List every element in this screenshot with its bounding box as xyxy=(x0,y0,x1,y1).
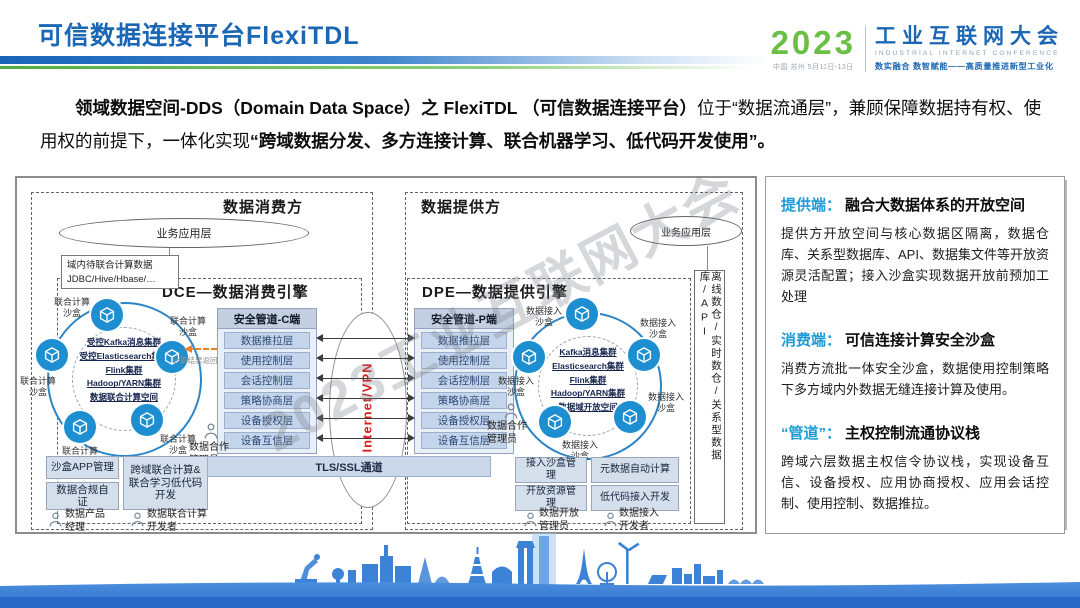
pipe-layer: 设备互信层 xyxy=(224,432,310,449)
role-open-admin: 数据开放管理员 xyxy=(539,508,587,533)
pipe-layer: 会话控制层 xyxy=(224,372,310,389)
slide: 可信数据连接平台FlexiTDL 2023 中国·苏州 5月11日-13日 工业… xyxy=(0,0,1080,608)
consumer-zone-label: 数据消费方 xyxy=(223,196,303,217)
sandbox-label: 数据接入沙盒 xyxy=(523,306,565,328)
flow-arrow xyxy=(319,378,412,379)
arrow-note: 计算结果返回 xyxy=(160,355,230,366)
sandbox-label: 联合计算沙盒 xyxy=(167,316,209,338)
tls-channel: TLS/SSL通道 xyxy=(207,456,491,477)
logo-name-cn: 工业互联网大会 xyxy=(875,26,1064,48)
section-body: 提供方开放空间与核心数据区隔离，数据仓库、关系型数据库、API、数据集文件等开放… xyxy=(781,223,1049,307)
pipe-layer: 使用控制层 xyxy=(224,352,310,369)
cube-icon xyxy=(131,404,163,436)
flow-arrow xyxy=(319,418,412,419)
panel-section-provider: 提供端：融合大数据体系的开放空间 提供方开放空间与核心数据区隔离，数据仓库、关系… xyxy=(781,195,1049,307)
sandbox-label: 联合计算沙盒 xyxy=(17,376,59,398)
sandbox-label: 数据接入沙盒 xyxy=(645,392,687,414)
consumer-box-compliance: 数据合规自证 xyxy=(46,482,119,510)
flow-arrow xyxy=(319,358,412,359)
person-icon xyxy=(603,511,618,528)
cube-icon xyxy=(566,298,598,330)
city-skyline-graphic xyxy=(0,533,1080,608)
person-icon xyxy=(503,402,519,420)
flow-arrow xyxy=(319,438,412,439)
cube-icon xyxy=(64,411,96,443)
person-icon xyxy=(203,422,219,440)
sandbox-label: 数据接入沙盒 xyxy=(495,376,537,398)
cube-icon xyxy=(36,339,68,371)
provider-app-layer: 业务应用层 xyxy=(630,216,742,246)
role-product-manager: 数据产品经理 xyxy=(65,509,111,534)
intro-bold-lead: 领域数据空间-DDS（Domain Data Space）之 FlexiTDL … xyxy=(75,98,697,118)
flow-arrow xyxy=(319,338,412,339)
cube-icon xyxy=(513,341,545,373)
logo-venue: 中国·苏州 5月11日-13日 xyxy=(771,62,856,72)
logo-name-en: INDUSTRIAL INTERNET CONFERENCE xyxy=(875,50,1064,57)
logo-slogan: 数实融合 数智赋能——高质量推进新型工业化 xyxy=(875,60,1064,72)
role-access-dev: 数据接入开发者 xyxy=(619,508,667,533)
conference-logo: 2023 中国·苏州 5月11日-13日 工业互联网大会 INDUSTRIAL … xyxy=(771,26,1064,72)
role-provider-admin: 数据合作管理员 xyxy=(487,421,531,446)
panel-section-consumer: 消费端：可信连接计算安全沙盒 消费方流批一体安全沙盒，数据使用控制策略下多方域内… xyxy=(781,330,1049,400)
pipe-layer: 设备授权层 xyxy=(224,412,310,429)
section-tag: 提供端： xyxy=(781,197,841,214)
section-title: 主权控制流通协议栈 xyxy=(845,425,980,442)
provider-box-sandbox-mgmt: 接入沙盒管理 xyxy=(515,457,587,483)
sandbox-label: 联合计算沙盒 xyxy=(51,297,93,319)
sandbox-request-arrow xyxy=(187,348,217,350)
intro-paragraph: 领域数据空间-DDS（Domain Data Space）之 FlexiTDL … xyxy=(40,92,1043,158)
section-title: 融合大数据体系的开放空间 xyxy=(845,197,1025,214)
provider-box-metadata: 元数据自动计算 xyxy=(591,457,679,483)
page-title: 可信数据连接平台FlexiTDL xyxy=(38,16,360,52)
person-icon xyxy=(48,511,63,528)
cube-icon xyxy=(628,339,660,371)
architecture-diagram: 数据消费方 业务应用层 域内待联合计算数据 JDBC/Hive/Hbase/… … xyxy=(15,176,757,534)
cube-icon xyxy=(91,299,123,331)
person-icon xyxy=(130,511,145,528)
section-body: 消费方流批一体安全沙盒，数据使用控制策略下多方域内外数据无缝连接计算及使用。 xyxy=(781,358,1049,400)
person-icon xyxy=(523,511,538,528)
intro-bold-tail: “跨域数据分发、多方连接计算、联合机器学习、低代码开发使用”。 xyxy=(250,131,775,151)
provider-zone-label: 数据提供方 xyxy=(421,196,501,217)
panel-section-pipe: “管道”：主权控制流通协议栈 跨域六层数据主权信令协议栈，实现设备互信、设备授权… xyxy=(781,423,1049,514)
consumer-box-crossdomain: 跨域联合计算&联合学习低代码开发 xyxy=(123,456,208,510)
connector-line xyxy=(707,246,708,270)
section-tag: 消费端： xyxy=(781,332,841,349)
pipe-c-title: 安全管道-C端 xyxy=(218,309,316,329)
sandbox-label: 数据接入沙盒 xyxy=(637,318,679,340)
cube-icon xyxy=(539,406,571,438)
role-joint-compute-dev: 数据联合计算开发者 xyxy=(147,509,211,534)
cube-icon xyxy=(614,401,646,433)
security-pipe-c: 安全管道-C端 数据推拉层 使用控制层 会话控制层 策略协商层 设备授权层 设备… xyxy=(217,308,317,454)
section-tag: “管道”： xyxy=(781,425,841,442)
pipe-p-title: 安全管道-P端 xyxy=(415,309,513,329)
pipe-layer: 使用控制层 xyxy=(421,352,507,369)
network-label: Internet/VPN xyxy=(360,362,375,452)
consumer-datasource-box: 域内待联合计算数据 JDBC/Hive/Hbase/… xyxy=(61,255,179,289)
dpe-label: DPE—数据提供引擎 xyxy=(422,281,568,302)
section-body: 跨域六层数据主权信令协议栈，实现设备互信、设备授权、应用协商授权、应用会话控制、… xyxy=(781,451,1049,514)
flow-arrow xyxy=(319,398,412,399)
consumer-box-sandbox-app: 沙盒APP管理 xyxy=(46,456,119,479)
explanation-panel: 提供端：融合大数据体系的开放空间 提供方开放空间与核心数据区隔离，数据仓库、关系… xyxy=(765,176,1065,534)
logo-year: 2023 xyxy=(771,26,856,59)
pipe-layer: 数据推拉层 xyxy=(224,332,310,349)
provider-datastore: 离线数仓/实时数仓/关系型数据库/API xyxy=(694,270,725,524)
consumer-app-layer: 业务应用层 xyxy=(59,218,309,248)
dce-label: DCE—数据消费引擎 xyxy=(162,281,309,302)
section-title: 可信连接计算安全沙盒 xyxy=(845,332,995,349)
logo-divider xyxy=(865,26,866,72)
pipe-layer: 策略协商层 xyxy=(224,392,310,409)
pipe-layer: 数据推拉层 xyxy=(421,332,507,349)
